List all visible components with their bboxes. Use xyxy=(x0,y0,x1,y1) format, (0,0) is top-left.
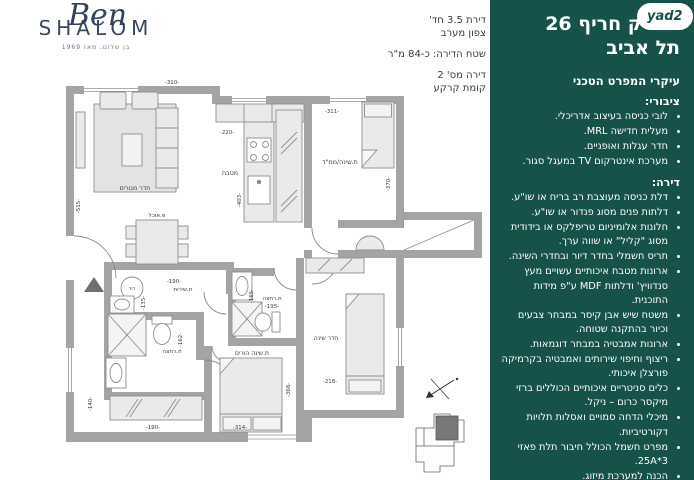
dim-living-width: -310- xyxy=(165,80,179,86)
list-item: ריצוף וחיפוי שירותים ואמבטיה בקרמיקה פור… xyxy=(500,353,668,381)
compass-icon xyxy=(426,378,458,399)
bedroom-label: חדר שינה xyxy=(314,335,338,342)
dim-master-height: -368- xyxy=(286,383,292,397)
dim-bath1-height: -162- xyxy=(178,333,184,347)
list-item: מעלית חדישה MRL. xyxy=(500,125,668,139)
kitchen-label: מטבח xyxy=(222,170,238,177)
yad2-logo: yad2 xyxy=(638,4,692,29)
apartment-spec-list: דלת כניסה מעוצבת רב בריח או שו"ע. דלתות … xyxy=(500,191,680,480)
dim-living-height: -515- xyxy=(76,199,82,213)
dim-master-width: -314- xyxy=(233,425,247,431)
list-item: מערכת אינטרקום TV במעגל סגור. xyxy=(500,155,668,169)
bathroom-1-label: ת.רחצה xyxy=(162,349,182,355)
list-item: דלת כניסה מעוצבת רב בריח או שו"ע. xyxy=(500,191,668,205)
mamad-label: ת.שינה/ממ"ד xyxy=(322,159,358,166)
list-item: הכנה למערכת מיזוג. xyxy=(500,470,668,480)
dining-label: פ.אוכל xyxy=(149,212,166,219)
floor-plan: חדר מגורים מטבח ת.שינה/ממ"ד פ.אוכל ת.שיר… xyxy=(0,0,490,480)
bedroom-furniture xyxy=(306,258,384,394)
master-bedroom-furniture xyxy=(220,358,282,432)
entrance-arrow xyxy=(84,277,104,292)
dim-closet-width: -190- xyxy=(146,425,160,431)
spec-subtitle: עיקרי המפרט הטכני xyxy=(500,74,680,88)
key-plan xyxy=(416,414,464,472)
address-line2: תל אביב xyxy=(500,36,680,60)
living-room-furniture xyxy=(76,92,178,192)
dim-toilet-width: -190- xyxy=(167,279,181,285)
apartment-heading: דירה: xyxy=(500,176,680,189)
dim-kitchen-width: -220- xyxy=(220,130,234,136)
dim-mamad-width: -311- xyxy=(325,109,339,115)
list-item: ארונות אמבטיה במבחר דוגמאות. xyxy=(500,338,668,352)
list-item: כלים סניטריים איכותיים הכוללים ברזי מיקס… xyxy=(500,382,668,410)
list-item: מפרט חשמל הכולל חיבור תלת פאזי 3*25A. xyxy=(500,441,668,469)
dim-bath2-width: -195- xyxy=(265,304,279,310)
list-item: תריס חשמלי בחדר דיור ובחדרי השינה. xyxy=(500,250,668,264)
closet xyxy=(110,396,202,420)
dim-bath2-height: -165- xyxy=(249,289,255,303)
toilet-room-label: ת.שירות xyxy=(173,287,192,293)
dim-mamad-height: -370- xyxy=(386,177,392,191)
dim-toilet-height: -135- xyxy=(141,296,147,310)
list-item: משטח שיש אבן קיסר במבחר צבעים וכיור בהתק… xyxy=(500,309,668,337)
list-item: מיכלי הדחה סמויים ואסלות תלויות דקורטיבי… xyxy=(500,411,668,439)
kitchen-furniture xyxy=(216,104,304,222)
dim-kitchen-height: -403- xyxy=(237,193,243,207)
dim-closet-height: -140- xyxy=(88,397,94,411)
boiler-label: דוד xyxy=(129,287,136,292)
listing-flyer: Ben SHALOM בן שלום. מאז 1969 דירת 3.5 חד… xyxy=(0,0,694,480)
dining-furniture xyxy=(126,220,188,264)
public-spec-list: לובי כניסה בעיצוב אדריכלי. מעלית חדישה M… xyxy=(500,110,680,169)
list-item: לובי כניסה בעיצוב אדריכלי. xyxy=(500,110,668,124)
list-item: דלתות פנים מסוג פנדור או שו"ע. xyxy=(500,206,668,220)
public-heading: ציבורי: xyxy=(500,95,680,108)
list-item: חלונות אלומיניום טריפלקס או בידודית מסוג… xyxy=(500,221,668,249)
bathroom-2-label: ת.רחצה xyxy=(262,296,282,302)
list-item: חדר עגלות ואופניים. xyxy=(500,140,668,154)
list-item: ארונות מטבח איכותיים עשויים מעץ סנדוויץ'… xyxy=(500,265,668,307)
master-bedroom-label: ת.שינה הורים xyxy=(235,350,269,357)
spec-sidebar: yad2 אייזיק חריף 26 תל אביב עיקרי המפרט … xyxy=(490,0,694,480)
living-room-label: חדר מגורים xyxy=(120,185,151,192)
dim-bedroom-width: -218- xyxy=(323,379,337,385)
toilet-room-fixtures xyxy=(110,277,143,313)
